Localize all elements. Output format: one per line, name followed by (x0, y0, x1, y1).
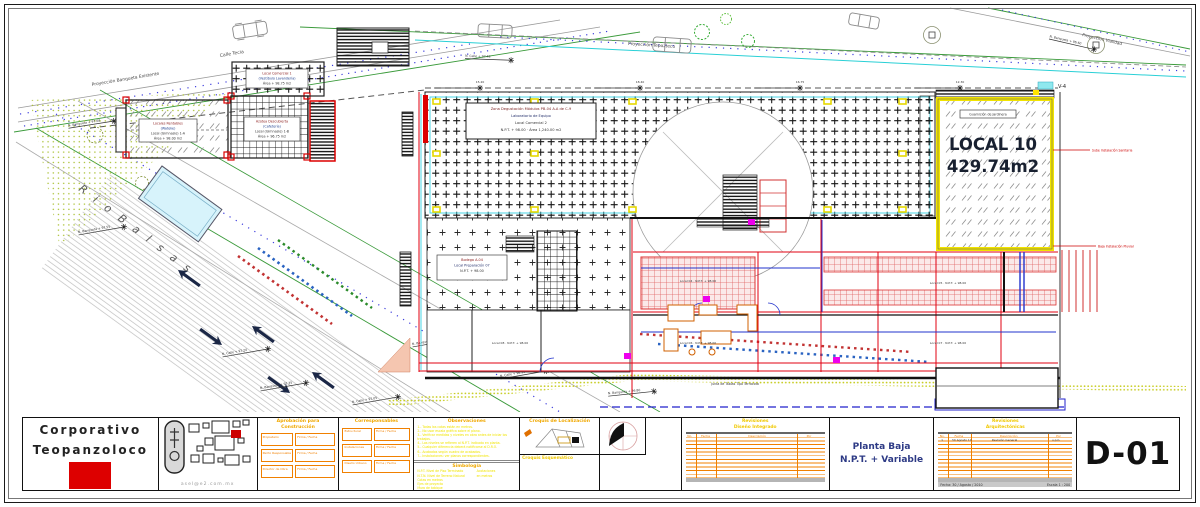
stair-block (310, 101, 335, 161)
location-map (522, 425, 594, 451)
revisiones-integrado-block: Revisiones Diseño Integrado No. Fecha De… (682, 418, 830, 490)
svg-text:Baja Instalación Pluvial: Baja Instalación Pluvial (1098, 245, 1134, 249)
svg-text:N. Calle + 97.48: N. Calle + 97.48 (465, 54, 491, 59)
croquis-block: Croquis de Localización Croquis Esquemát… (520, 418, 600, 490)
north-arrow-block (600, 418, 682, 490)
bottom-note: Junta de Tablas Tipo Terracota (710, 382, 759, 386)
svg-text:Local 08 · N.P.T. + 98.00: Local 08 · N.P.T. + 98.00 (492, 341, 528, 345)
building-a: Locales Rentables (Wateke) Local (Gimnas… (116, 97, 230, 158)
svg-text:Local 04 · N.P.T. + 98.00: Local 04 · N.P.T. + 98.00 (680, 279, 716, 283)
red-wall-accent (423, 95, 428, 143)
sheet-title-line2: N.P.T. + Variable (840, 454, 923, 467)
floor-plan-canvas: Proyección Banqueta Existente Calle Teci… (0, 0, 1200, 412)
stair-bar (402, 112, 413, 156)
dim-label: 16.75 (796, 80, 805, 84)
local10-area: 429.74m2 (947, 157, 1039, 176)
dim-label: 12.30 (956, 80, 965, 84)
svg-text:Bodega A-04: Bodega A-04 (461, 258, 483, 262)
revisiones-integrado-table: No. Fecha Descripción Por (686, 432, 825, 482)
svg-text:Local 07 · N.P.T. + 98.00: Local 07 · N.P.T. + 98.00 (930, 341, 966, 345)
dim-label: 18.40 (636, 80, 645, 84)
svg-text:(Wateke): (Wateke) (161, 127, 176, 131)
svg-text:Área + 98.75 m2: Área + 98.75 m2 (263, 81, 291, 86)
svg-text:Guarnición de Jardinera: Guarnición de Jardinera (969, 113, 1007, 117)
approval-block: Aprobación para Construcción Propietario… (258, 418, 340, 490)
drawing-scale: Escala 1 : 200 (1047, 483, 1070, 487)
north-arrow-icon (603, 419, 643, 453)
stair-block (537, 231, 577, 311)
company-logo (69, 462, 111, 489)
company-name-line1: Corporativo (23, 423, 158, 438)
drawing-sheet: Proyección Banqueta Existente Calle Teci… (0, 0, 1200, 507)
architect-email: asel@e2.com.mx (159, 482, 257, 487)
svg-text:Locales Rentables: Locales Rentables (153, 122, 183, 126)
stair-strip (920, 96, 935, 216)
svg-text:(Cafetería): (Cafetería) (263, 125, 281, 129)
company-block: Corporativo Teopanzoloco c. Tepozteco es… (23, 418, 159, 490)
sheet-number: D-01 (1085, 436, 1171, 472)
local-10: Guarnición de Jardinera LOCAL 10 429.74m… (936, 90, 1134, 249)
stair-bar (400, 252, 411, 306)
svg-text:Local Comercial 2: Local Comercial 2 (515, 121, 547, 125)
svg-text:(Vestíbulo Lavandería): (Vestíbulo Lavandería) (258, 77, 295, 81)
svg-text:N.P.T. + 98.00: N.P.T. + 98.00 (460, 269, 484, 273)
corresponsables-block: Corresponsables EstructuralFirma / Fecha… (339, 418, 414, 490)
observaciones-block: Observaciones 1.- Todas las cotas están … (414, 418, 520, 490)
street-label: Proyección Banqueta Existente (91, 70, 160, 88)
svg-text:Local 06 · N.P.T. + 98.00: Local 06 · N.P.T. + 98.00 (680, 341, 716, 345)
sheet-title-block: Planta Baja N.P.T. + Variable (830, 418, 935, 490)
svg-text:Azotea Descubierta: Azotea Descubierta (256, 120, 288, 124)
local-comercial-1: Local Comercial 1 (Vestíbulo Lavandería)… (232, 62, 324, 96)
logo-red-square (231, 430, 241, 438)
sheet-title-line1: Planta Baja (853, 441, 911, 454)
title-block: Corporativo Teopanzoloco c. Tepozteco es… (22, 417, 1180, 491)
revisiones-arquitectonicas-block: Revisiones Arquitectónicas No. Fecha Des… (934, 418, 1077, 490)
svg-text:Local (Gimnasio) 1-B: Local (Gimnasio) 1-B (255, 130, 290, 134)
sheet-number-block: D-01 (1077, 418, 1179, 490)
map-arrow (524, 429, 532, 437)
revision-date: Fecha: 30 / Agosto / 2010 (940, 483, 982, 487)
svg-text:Local (Gimnasio) 1-A: Local (Gimnasio) 1-A (151, 132, 186, 136)
striped-structure (337, 28, 409, 66)
street-top-right: Proyección Tepozteco Proyección Vialidad (300, 8, 1190, 77)
red-stair-strip (1062, 250, 1097, 312)
svg-text:Local 05 · N.P.T. + 98.00: Local 05 · N.P.T. + 98.00 (930, 281, 966, 285)
company-name-line2: Teopanzoloco (23, 443, 158, 458)
architect-logo-block: asel@e2.com.mx (159, 418, 258, 490)
svg-text:Local Preparación 07: Local Preparación 07 (454, 264, 489, 268)
architect-logo (159, 418, 256, 476)
svg-text:V-4: V-4 (1058, 84, 1066, 90)
street-label: Proyección Tepozteco (628, 40, 676, 50)
street-label: Calle Tecia (219, 49, 244, 59)
svg-text:Área + 96.75 m2: Área + 96.75 m2 (258, 134, 286, 139)
building-b: Azotea Descubierta (Cafetería) Local (Gi… (228, 93, 335, 161)
svg-text:Sube Instalación Sanitaria: Sube Instalación Sanitaria (1092, 149, 1132, 153)
svg-text:Zona Degustación Módulos PB-04: Zona Degustación Módulos PB-04 A-A de C-… (491, 107, 572, 111)
svg-text:Laboratorio de Equipo: Laboratorio de Equipo (511, 114, 551, 118)
revisiones-arquitectonicas-table: No. Fecha Descripción Por 1 30 Agosto 10… (938, 432, 1072, 482)
svg-text:N.P.T. + 98.00 · Área 1,240.00: N.P.T. + 98.00 · Área 1,240.00 m2 (501, 127, 562, 132)
dim-label: 15.20 (476, 80, 485, 84)
svg-text:Local Comercial 1: Local Comercial 1 (262, 72, 291, 76)
svg-text:Área + 98.00 m2: Área + 98.00 m2 (154, 136, 182, 141)
local10-name: LOCAL 10 (949, 135, 1037, 154)
